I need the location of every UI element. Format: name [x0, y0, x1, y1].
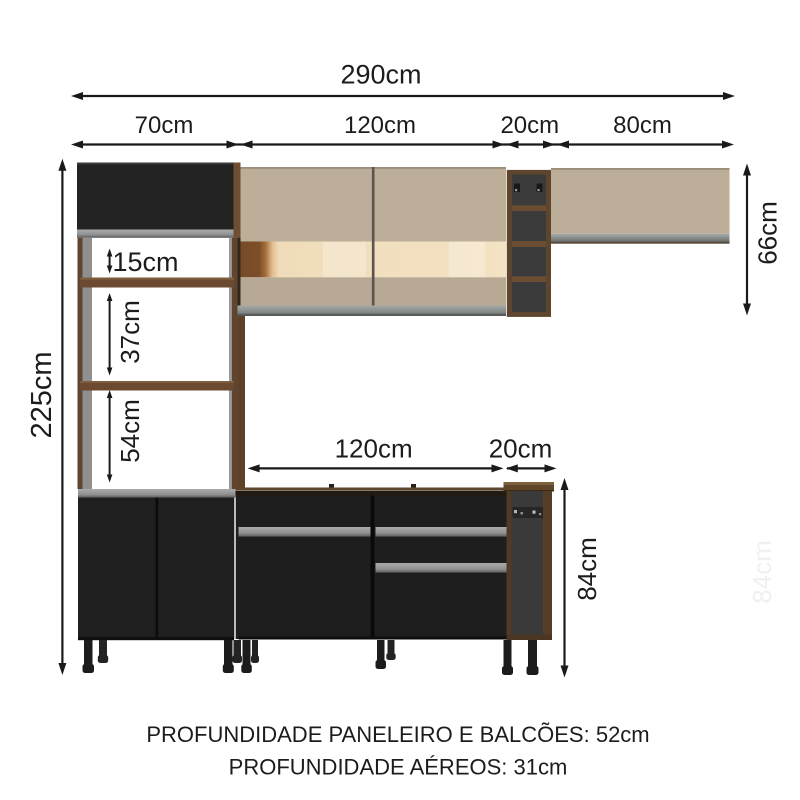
svg-text:70cm: 70cm	[135, 112, 194, 139]
svg-text:20cm: 20cm	[489, 434, 553, 464]
svg-text:225cm: 225cm	[26, 351, 58, 438]
svg-text:290cm: 290cm	[340, 60, 421, 90]
svg-text:80cm: 80cm	[613, 112, 672, 139]
svg-text:120cm: 120cm	[344, 112, 416, 139]
svg-text:20cm: 20cm	[500, 112, 559, 139]
svg-text:84cm: 84cm	[572, 537, 602, 601]
svg-text:37cm: 37cm	[115, 300, 145, 364]
svg-text:54cm: 54cm	[115, 399, 145, 463]
svg-text:PROFUNDIDADE AÉREOS: 31cm: PROFUNDIDADE AÉREOS: 31cm	[229, 755, 568, 780]
svg-text:120cm: 120cm	[335, 434, 413, 464]
svg-text:84cm: 84cm	[747, 540, 777, 604]
svg-text:66cm: 66cm	[753, 201, 783, 265]
svg-text:15cm: 15cm	[113, 247, 179, 277]
svg-text:PROFUNDIDADE PANELEIRO E BALCÕ: PROFUNDIDADE PANELEIRO E BALCÕES: 52cm	[146, 722, 649, 747]
